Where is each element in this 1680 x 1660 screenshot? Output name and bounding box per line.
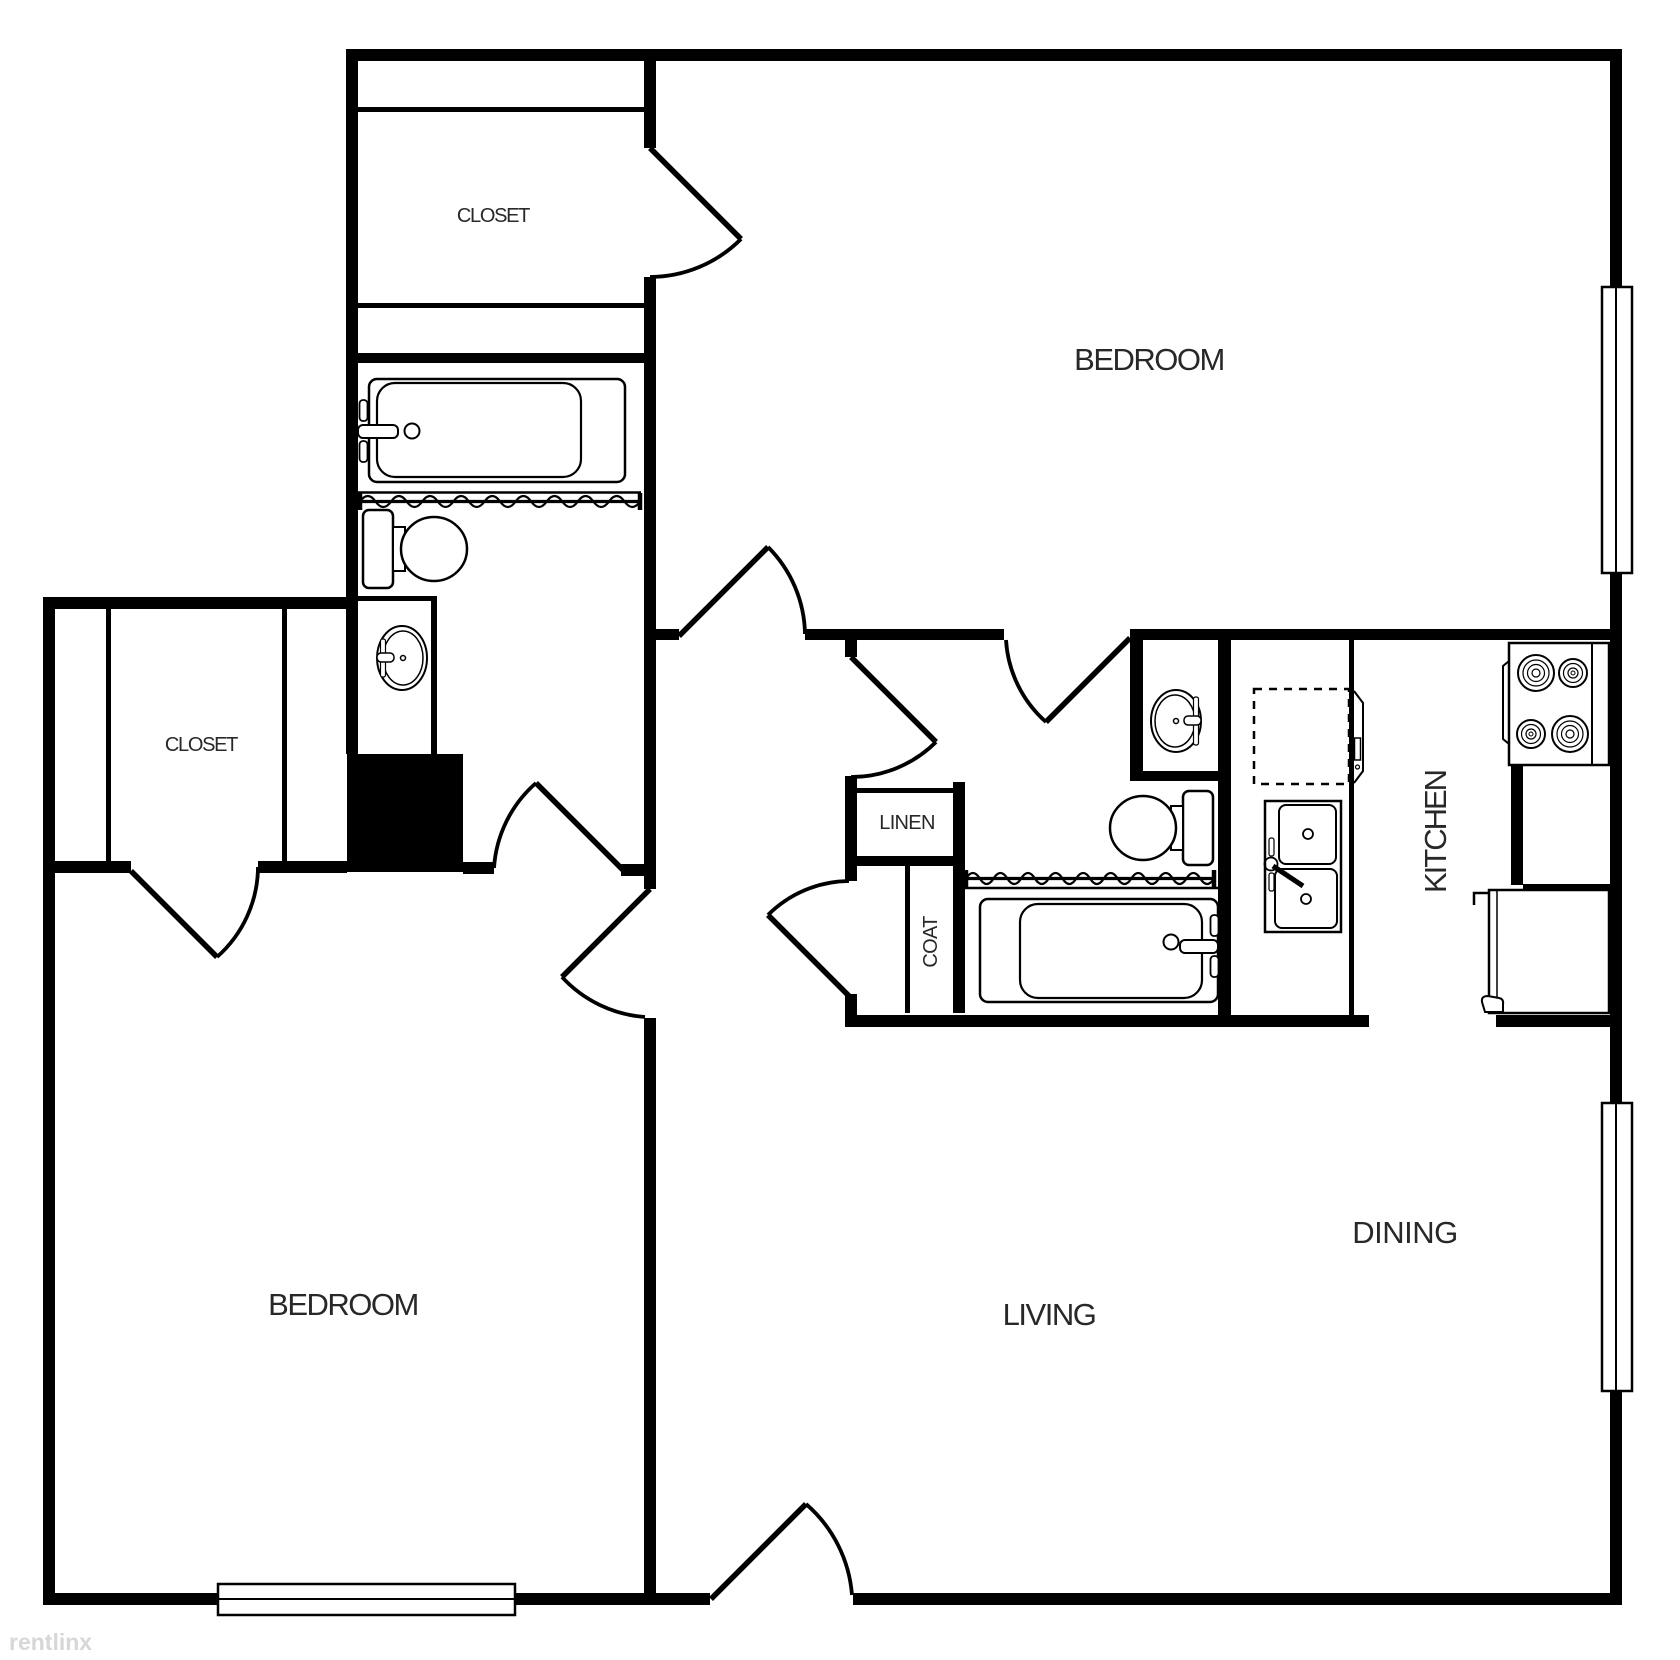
svg-text:rentlinx: rentlinx (9, 1629, 92, 1655)
svg-text:CLOSET: CLOSET (457, 205, 530, 227)
svg-text:LIVING: LIVING (1003, 1297, 1096, 1332)
svg-text:KITCHEN: KITCHEN (1418, 771, 1453, 893)
svg-text:BEDROOM: BEDROOM (1074, 342, 1224, 377)
svg-text:COAT: COAT (920, 916, 942, 968)
svg-text:LINEN: LINEN (879, 812, 934, 834)
svg-text:BEDROOM: BEDROOM (268, 1287, 418, 1322)
svg-text:DINING: DINING (1352, 1215, 1458, 1250)
svg-text:CLOSET: CLOSET (165, 734, 238, 756)
